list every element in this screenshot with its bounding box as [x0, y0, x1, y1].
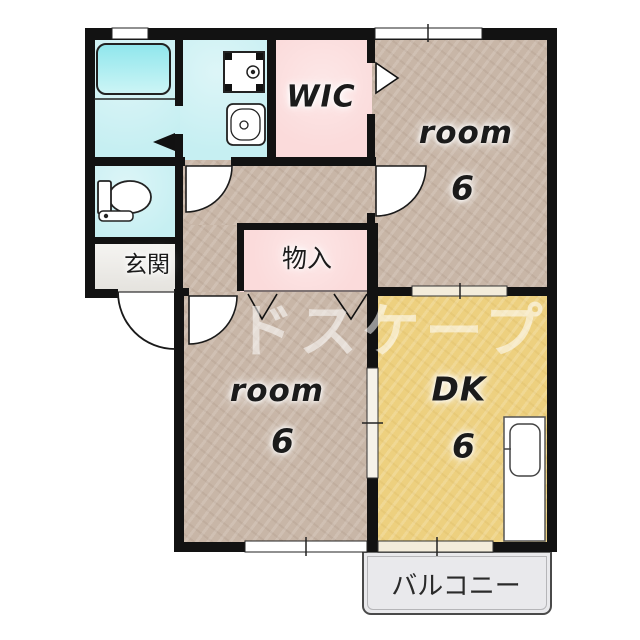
wall — [367, 295, 378, 368]
dk-label: DK — [432, 370, 487, 409]
balcony-label: バルコニー — [391, 566, 520, 603]
wall — [237, 223, 244, 291]
wic-label: WIC — [286, 80, 355, 115]
wall — [175, 166, 183, 289]
wall — [85, 237, 183, 244]
wall — [174, 289, 184, 552]
room-bedroom-top — [372, 33, 552, 291]
wall — [367, 478, 378, 552]
wall — [231, 157, 376, 166]
room-bedroom-bottom — [180, 292, 373, 546]
wall — [174, 542, 557, 552]
room-bathroom — [90, 33, 180, 163]
floor-plan: WIC room 6 room 6 DK 6 玄関 物入 バルコニー ドスケープ — [0, 0, 640, 640]
wall — [175, 28, 183, 106]
wall — [367, 28, 375, 63]
room-dk — [372, 292, 552, 546]
hallway-lower — [180, 225, 244, 295]
room-toilet — [90, 160, 180, 242]
wall — [85, 157, 185, 166]
wall — [85, 289, 118, 298]
storage-label: 物入 — [282, 239, 332, 275]
room-washroom — [180, 33, 272, 163]
wall — [367, 230, 378, 295]
entrance-door — [118, 292, 175, 349]
wall — [183, 288, 189, 296]
wall — [267, 28, 276, 157]
hallway-upper — [180, 160, 376, 232]
bedroom-bottom-size: 6 — [271, 422, 295, 461]
wall — [175, 134, 183, 157]
wall — [237, 223, 378, 230]
bedroom-top-label: room — [419, 115, 513, 151]
dk-size: 6 — [452, 427, 476, 466]
wall — [367, 114, 375, 165]
entrance-label: 玄関 — [124, 245, 170, 279]
bedroom-bottom-label: room — [230, 373, 324, 409]
bedroom-top-size: 6 — [451, 169, 475, 208]
wall — [507, 287, 557, 296]
wall — [85, 28, 557, 40]
